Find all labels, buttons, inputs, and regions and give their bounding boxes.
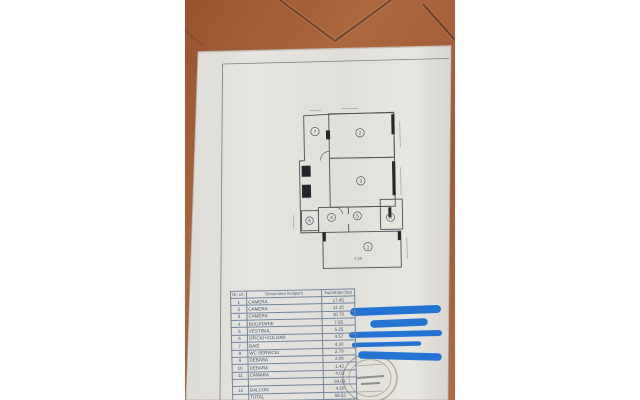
area-table-wrap: Nr. crt. Denumirea încăperii Suprafața (… [230,288,355,400]
redaction-stroke-5 [362,355,438,357]
canvas: { "photo": { "description": "photo of a … [0,0,640,400]
table-cell [233,394,249,400]
redaction-stroke-4 [354,344,419,346]
bottom-room-width-dim: 4.50 [354,256,363,261]
table-row: TOTAL58.53 [233,392,357,400]
table-cell: 58.53 [324,392,357,400]
photo-of-floor-plan: 7 2 3 8 4 5 6 1 [185,0,455,400]
area-table: Nr. crt. Denumirea încăperii Suprafața (… [230,288,357,400]
table-cell: TOTAL [249,392,324,400]
redaction-stroke-3 [352,333,439,335]
redaction-stroke-2 [374,322,424,324]
table-body: 1CAMERA17.452CAMERA11.153CAMERA10.704BUC… [231,296,357,400]
redaction-stroke-1 [354,309,437,312]
